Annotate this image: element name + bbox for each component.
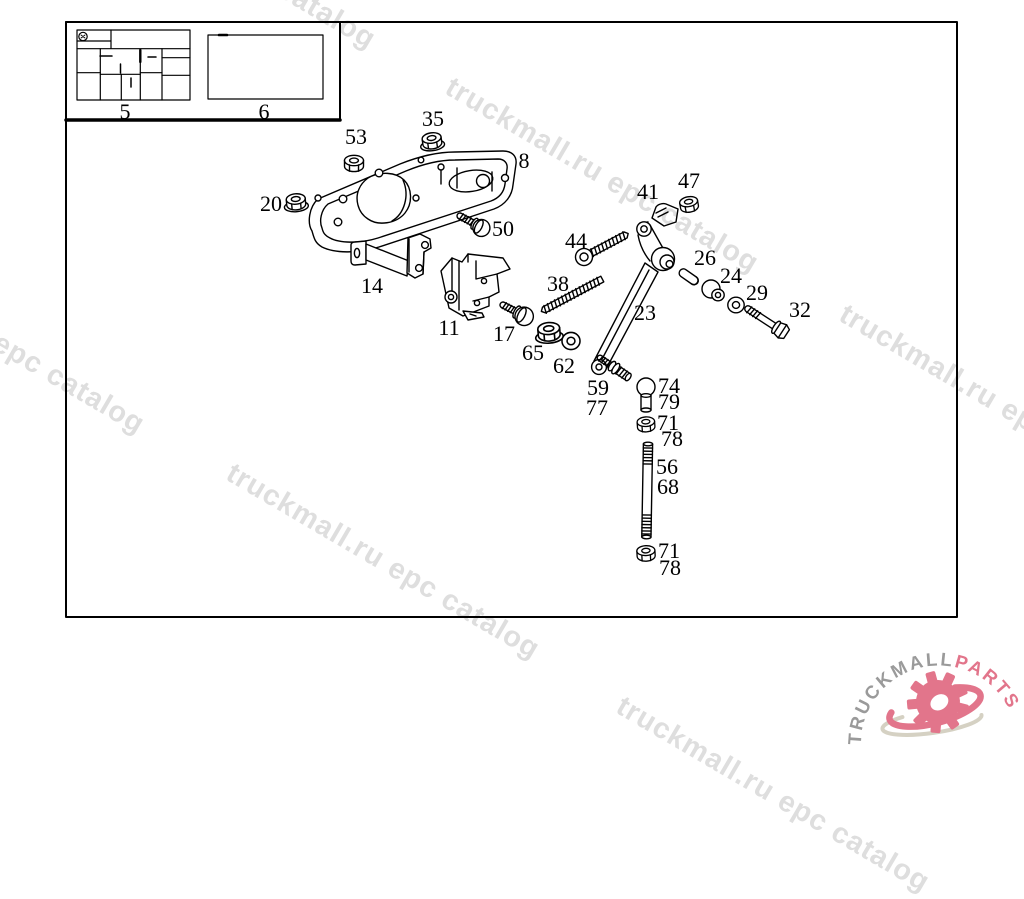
callout-32[interactable]: 32 [789,299,811,321]
part-53-nut [345,155,364,171]
callout-17[interactable]: 17 [493,323,515,345]
callout-38[interactable]: 38 [547,273,569,295]
callout-50[interactable]: 50 [492,218,514,240]
callout-77[interactable]: 77 [586,397,608,419]
part-23-lever [592,222,675,375]
part-20-flanged-nut [283,193,308,213]
parts-diagram-art: TRUCKMALLPARTS [0,0,1024,750]
callout-6[interactable]: 6 [259,101,270,123]
callout-24[interactable]: 24 [720,265,742,287]
callout-47[interactable]: 47 [678,170,700,192]
part-56-stud [642,442,653,539]
callout-29[interactable]: 29 [746,282,768,304]
part-71-nut-upper [637,416,655,432]
callout-78-lower[interactable]: 78 [659,557,681,579]
part-74-ball-pin [637,378,655,412]
callout-26[interactable]: 26 [694,247,716,269]
catalog-page: { "watermark": { "text": "truckmall.ru e… [0,0,1024,750]
callout-44[interactable]: 44 [565,230,587,252]
callout-68[interactable]: 68 [657,476,679,498]
callout-65[interactable]: 65 [522,342,544,364]
callout-11[interactable]: 11 [438,317,459,339]
part-6-plate [208,35,323,99]
part-11-bracket [441,254,510,320]
part-71-nut-lower [637,545,656,561]
callout-62[interactable]: 62 [553,355,575,377]
callout-8[interactable]: 8 [519,150,530,172]
callout-20[interactable]: 20 [260,193,282,215]
brand-logo: TRUCKMALLPARTS [844,648,1024,745]
part-5-data-plate [77,30,190,100]
callout-41[interactable]: 41 [637,181,659,203]
part-41-clip [652,204,678,226]
part-47-nut [679,195,699,213]
callout-35[interactable]: 35 [422,108,444,130]
callout-23[interactable]: 23 [634,302,656,324]
inset-box [66,22,340,120]
callout-78-upper[interactable]: 78 [661,428,683,450]
part-62-washer [562,332,580,349]
part-26-pin [678,267,700,286]
part-29-washer [728,297,744,313]
part-32-bolt [741,301,791,341]
part-35-flanged-nut [419,131,445,152]
callout-53[interactable]: 53 [345,126,367,148]
main-border-frame [66,22,957,617]
callout-5[interactable]: 5 [120,101,131,123]
callout-14[interactable]: 14 [361,275,383,297]
